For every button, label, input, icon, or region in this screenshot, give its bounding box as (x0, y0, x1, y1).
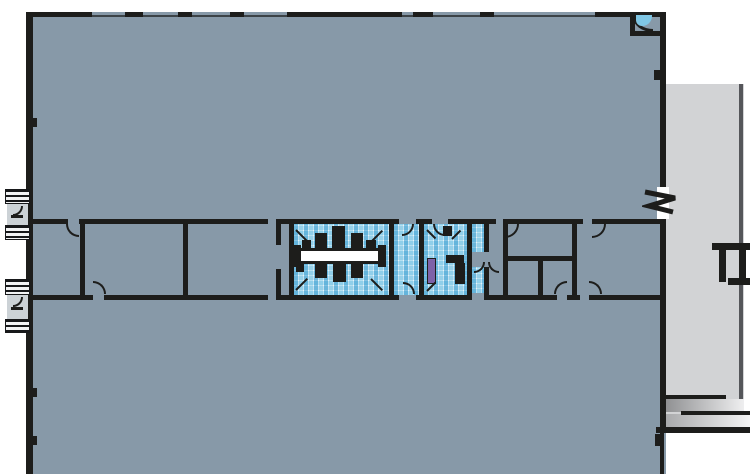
exterior-wall-right-lower (660, 432, 664, 474)
plumbing-fixture (351, 263, 363, 278)
interior-wall-v (389, 224, 394, 295)
exterior-wall-top (480, 12, 494, 17)
plumbing-fixture (455, 263, 465, 284)
plumbing-fixture (332, 226, 345, 249)
interior-wall-h (280, 219, 399, 224)
interior-wall-h (416, 295, 472, 300)
wall-column-tick (33, 436, 37, 445)
exterior-wall-left (26, 12, 33, 474)
plumbing-fixture (296, 263, 304, 272)
floor-plan (0, 0, 750, 474)
entry-step-line (11, 307, 23, 310)
interior-wall-v (289, 219, 294, 300)
interior-wall-v (276, 269, 281, 300)
entry-step-line (11, 215, 23, 218)
interior-wall-v (572, 219, 577, 300)
plumbing-fixture (315, 263, 327, 278)
exterior-wall-top (178, 12, 192, 17)
corner-closet-wall (630, 31, 666, 36)
interior-wall-h (32, 219, 68, 224)
wall-column-tick (33, 118, 37, 127)
wall-end-cap (654, 70, 666, 80)
interior-wall-v (183, 219, 188, 300)
interior-wall-v (276, 219, 281, 245)
entry-steps (5, 319, 30, 333)
exterior-wall-top (26, 12, 92, 17)
wall-column-tick (655, 434, 660, 446)
interior-wall-h (589, 295, 660, 300)
drinking-fountain (427, 258, 436, 284)
entry-steps (5, 279, 30, 295)
stair-rail (719, 250, 726, 282)
interior-wall-v (467, 219, 472, 300)
loading-ramp-lower (665, 414, 750, 427)
interior-wall-h (489, 295, 557, 300)
interior-wall-v (80, 219, 85, 300)
plumbing-fixture (315, 233, 327, 249)
interior-wall-h (79, 219, 268, 224)
entry-steps (5, 225, 30, 240)
interior-wall-v (419, 224, 424, 295)
plumbing-fixture (351, 233, 363, 249)
counter-end-block (378, 245, 386, 267)
dock-edge-line (656, 427, 750, 433)
interior-wall-v (484, 267, 489, 300)
wall-break-symbol (642, 183, 682, 223)
interior-wall-h (280, 295, 399, 300)
dock-edge-line (664, 395, 726, 399)
right-wing-floor (666, 84, 744, 430)
stair-rail (728, 278, 750, 285)
exterior-wall-top (125, 12, 143, 17)
entry-steps (5, 189, 30, 204)
interior-wall-v (538, 258, 543, 300)
restroom-counter (296, 251, 382, 261)
wall-column-tick (33, 388, 37, 397)
plumbing-fixture (333, 263, 346, 282)
dock-edge-line (681, 411, 750, 415)
stair-rail (712, 243, 750, 250)
restroom-tile-sliver (472, 224, 484, 252)
exterior-wall-top (287, 12, 402, 17)
interior-wall-v (484, 224, 489, 252)
exterior-wall-top (230, 12, 244, 17)
exterior-wall-top (413, 12, 433, 17)
plumbing-fixture (446, 255, 464, 263)
